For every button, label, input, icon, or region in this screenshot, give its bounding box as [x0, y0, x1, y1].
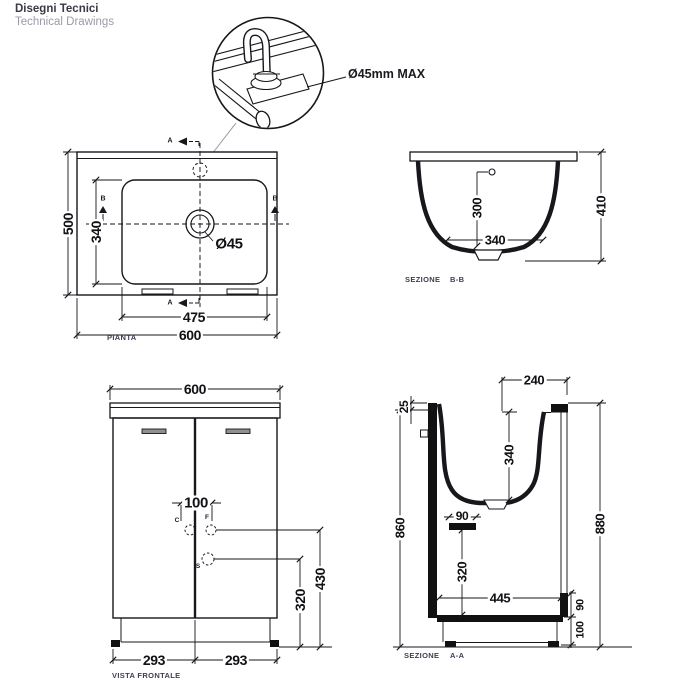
aa-dim-drain-width: 90	[454, 510, 471, 522]
front-dim-width: 600	[182, 382, 208, 396]
section-b-marker-right: B	[272, 196, 277, 203]
aa-caption: SEZIONE	[404, 652, 439, 660]
front-foot-right	[270, 640, 279, 647]
section-b-marker-left: B	[100, 196, 105, 203]
aa-back-bar	[560, 593, 568, 617]
front-handle-right	[226, 429, 250, 434]
front-caption: VISTA FRONTALE	[112, 672, 181, 680]
section-bb-linework	[410, 149, 606, 264]
bb-drain	[474, 250, 503, 260]
plan-dim-inner-width: 475	[181, 310, 207, 324]
plan-dim-outer-depth: 500	[61, 211, 75, 237]
front-dim-upper-holes-height: 430	[313, 566, 327, 592]
front-dim-door-right: 293	[223, 653, 249, 667]
bb-caption-ref: B-B	[450, 276, 464, 284]
front-handle-left	[142, 429, 166, 434]
hole-f	[206, 525, 216, 535]
bb-dim-bottom-width: 340	[483, 234, 508, 247]
sheet-title: Disegni Tecnici	[15, 4, 99, 16]
aa-dim-back-gap: 90	[576, 597, 587, 612]
front-view-linework	[107, 385, 332, 664]
bb-rim	[410, 152, 577, 161]
faucet-detail-bubble	[205, 18, 346, 164]
aa-hinge-tab	[421, 430, 429, 437]
aa-foot-right	[548, 641, 559, 647]
front-dim-ticks	[107, 386, 323, 663]
plan-outer-rect	[77, 152, 277, 295]
plan-tab-right	[227, 289, 258, 294]
front-dim-lower-hole-height: 320	[293, 587, 307, 613]
section-a-marker-top: A	[167, 138, 172, 145]
plan-dim-outer-width: 600	[177, 328, 203, 342]
bb-dim-overflow-height: 300	[471, 196, 484, 221]
aa-dim-inner-width: 445	[488, 592, 513, 605]
front-rim	[110, 403, 280, 418]
aa-front-wall	[428, 403, 437, 618]
hole-label-f: F	[205, 515, 209, 522]
bb-overflow-hole	[489, 169, 495, 175]
aa-dim-back-height: 880	[594, 512, 607, 537]
aa-dim-drain-height: 320	[456, 560, 469, 585]
front-dimension-lines	[110, 385, 332, 664]
faucet-base-body	[255, 72, 277, 82]
aa-dim-plinth: 100	[576, 619, 587, 640]
plan-drain-diameter: Ø45	[213, 237, 244, 252]
front-dim-door-left: 293	[141, 653, 167, 667]
plan-caption: PIANTA	[107, 334, 136, 342]
aa-caption-ref: A-A	[450, 652, 464, 660]
section-a-marker-bottom: A	[167, 300, 172, 307]
aa-dim-basin-depth: 340	[503, 443, 516, 468]
front-dim-hole-spacing: 100	[182, 496, 210, 511]
aa-cabinet-bottom	[437, 615, 563, 622]
aa-dim-ticks	[397, 377, 603, 650]
aa-plinth	[443, 622, 557, 643]
sheet-subtitle: Technical Drawings	[15, 17, 114, 29]
front-foot-left	[111, 640, 120, 647]
aa-drain	[484, 500, 509, 509]
aa-back-panel	[561, 413, 567, 594]
bb-dim-total-height: 410	[595, 194, 608, 219]
technical-drawing-sheet: Disegni Tecnici Technical Drawings Ø45mm…	[0, 0, 700, 700]
aa-dim-top-width: 240	[522, 374, 547, 387]
aa-foot-left	[445, 641, 456, 647]
front-plinth	[121, 618, 270, 642]
faucet-max-diameter-label: Ø45mm MAX	[348, 68, 425, 81]
aa-dim-rim: 25	[398, 399, 410, 416]
hole-label-c: C	[175, 518, 180, 525]
hole-label-s: S	[196, 564, 200, 571]
plan-tab-left	[142, 289, 173, 294]
aa-dim-front-height: 860	[394, 516, 407, 541]
plan-dim-inner-depth: 340	[89, 219, 103, 245]
drawing-linework	[0, 0, 700, 700]
aa-basin-profile	[439, 404, 544, 503]
aa-back-rim	[551, 404, 568, 413]
hole-s	[202, 553, 214, 565]
hole-c	[185, 525, 195, 535]
bb-caption: SEZIONE	[405, 276, 440, 284]
